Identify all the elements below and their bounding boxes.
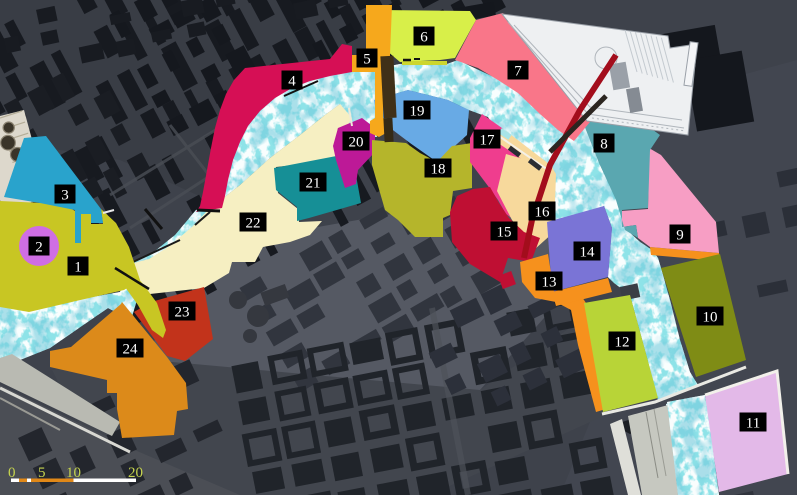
svg-text:7: 7	[514, 64, 522, 80]
svg-text:2: 2	[35, 240, 43, 256]
svg-text:21: 21	[306, 176, 321, 192]
svg-text:18: 18	[431, 162, 446, 178]
svg-text:15: 15	[497, 225, 512, 241]
svg-text:22: 22	[246, 216, 261, 232]
svg-text:5: 5	[363, 52, 371, 68]
svg-text:17: 17	[480, 133, 496, 149]
svg-text:19: 19	[410, 104, 425, 120]
svg-text:10: 10	[703, 310, 718, 326]
svg-text:4: 4	[288, 74, 296, 90]
svg-text:6: 6	[420, 30, 428, 46]
svg-text:20: 20	[349, 135, 364, 151]
svg-text:9: 9	[676, 228, 684, 244]
svg-text:12: 12	[615, 335, 630, 351]
svg-text:23: 23	[175, 305, 190, 321]
svg-text:1: 1	[74, 260, 82, 276]
svg-text:14: 14	[580, 245, 596, 261]
svg-text:24: 24	[123, 342, 139, 358]
svg-text:8: 8	[600, 137, 608, 153]
svg-text:3: 3	[61, 188, 69, 204]
svg-text:11: 11	[746, 416, 760, 432]
svg-text:13: 13	[542, 275, 557, 291]
svg-text:16: 16	[535, 205, 551, 221]
